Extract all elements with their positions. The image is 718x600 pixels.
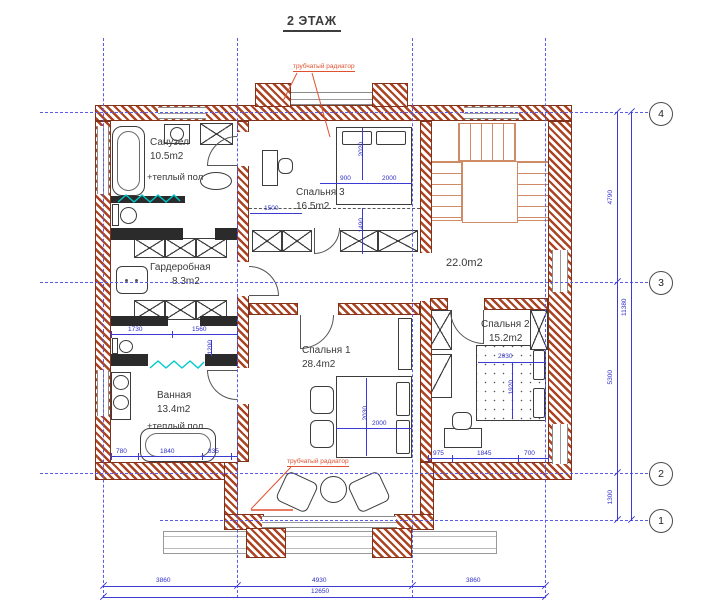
bay-window-top	[291, 92, 372, 105]
room-area: 10.5m2	[150, 150, 189, 164]
dim-label: 1730	[128, 327, 142, 334]
room-label-hall: 22.0m2	[446, 256, 483, 271]
door-opening	[237, 132, 249, 166]
dim-label: 2000	[372, 421, 386, 428]
dim-label: 1845	[477, 451, 491, 458]
stair-flight-top	[458, 123, 516, 161]
door-arc-bedroom2	[450, 310, 484, 344]
pillow	[533, 388, 545, 418]
round-table	[320, 476, 347, 503]
bathtub-sanuzel	[112, 126, 145, 196]
room-label-garderob: Гардеробная 8.3m2	[150, 261, 211, 288]
dim-label: 2030	[363, 401, 370, 425]
room-label-sanuzel: Санузел 10.5m2	[150, 136, 189, 163]
axis-marker-4: 4	[649, 102, 673, 126]
door-opening	[237, 368, 249, 404]
wardrobe-unit	[196, 238, 227, 258]
room-name: Спальня 1	[302, 344, 351, 358]
axis-line-a	[103, 38, 104, 598]
wall-vannaya-north	[111, 354, 148, 366]
room-area: 13.4m2	[157, 403, 191, 417]
shower-partition	[111, 196, 185, 203]
dim-label: 1500	[264, 206, 278, 213]
dim-line-bedroom2	[428, 458, 548, 459]
pillow	[396, 382, 410, 416]
floor-plan-canvas: 2 ЭТАЖ	[0, 0, 718, 600]
pillow	[396, 420, 410, 454]
dim-label: 835	[208, 449, 219, 456]
dim-label-total: 12650	[311, 589, 329, 596]
armchair-bedroom	[310, 386, 334, 414]
pillow	[376, 131, 406, 145]
wardrobe-unit	[134, 238, 165, 258]
dim-line-bed3-h	[320, 183, 412, 184]
wall-bedroom1-north	[249, 303, 298, 315]
room-note-vannaya: +теплый пол	[147, 421, 203, 432]
hall-wardrobe	[252, 230, 282, 252]
room-label-bedroom3: Спальня 3 16.5m2	[296, 186, 345, 213]
dim-label: 1300	[608, 483, 615, 511]
wall-bottom-left	[95, 462, 237, 480]
toilet-bowl-2	[119, 340, 133, 353]
axis-marker-1: 1	[649, 509, 673, 533]
dim-label: 1200	[208, 335, 215, 359]
dim-line-bottom-total	[103, 597, 545, 598]
page-title: 2 ЭТАЖ	[283, 14, 341, 32]
wall-sanuzel-south	[215, 228, 237, 240]
door-arc-bedroom3	[314, 228, 340, 254]
nightstand	[398, 318, 412, 370]
dim-label: 2000	[382, 176, 396, 183]
dim-label: 780	[116, 449, 127, 456]
toilet-bowl	[120, 207, 137, 224]
lounge-armchair-right	[347, 470, 391, 513]
door-leaf	[314, 228, 315, 254]
hall-opening	[420, 253, 432, 301]
door-arc-garderob	[249, 266, 279, 296]
axis-line-3	[40, 282, 648, 283]
sink-sanuzel	[200, 172, 232, 190]
door-leaf	[207, 370, 237, 371]
window-top-stairs	[464, 107, 519, 119]
wall-right	[548, 121, 572, 466]
dim-line-right-total	[631, 112, 632, 521]
door-arc-vannaya	[207, 370, 237, 400]
room-label-bedroom1: Спальня 1 28.4m2	[302, 344, 351, 371]
dim-label: 1560	[192, 327, 206, 334]
dresser	[116, 266, 148, 294]
dim-label: 1920	[509, 375, 516, 399]
dim-label: 4790	[608, 183, 615, 211]
room-name: Спальня 3	[296, 186, 345, 200]
glass-screen-zigzag-vannaya	[150, 361, 204, 368]
dim-label: 5300	[608, 363, 615, 391]
room-name: Гардеробная	[150, 261, 211, 275]
wall-bedroom2-north	[484, 298, 548, 310]
bay-window-bottom	[262, 516, 396, 528]
door-opening	[237, 262, 249, 296]
pillow	[533, 350, 545, 380]
wall-bedroom1-north	[338, 303, 420, 315]
dim-label: 3860	[156, 578, 170, 585]
annotation-radiator-bottom: трубчатый радиатор	[287, 458, 349, 467]
desk-2	[444, 428, 482, 448]
dim-line-bath	[111, 456, 237, 457]
wall-bottom-right	[424, 462, 572, 480]
dim-label: 2030	[498, 354, 512, 361]
axis-line-c	[412, 38, 413, 598]
axis-line-b	[237, 38, 238, 598]
toilet-tank	[112, 204, 119, 226]
axis-line-4	[40, 112, 648, 113]
room-area: 28.4m2	[302, 358, 351, 372]
dim-label-total: 11380	[622, 293, 629, 321]
pier-top-right	[372, 83, 408, 107]
dim-line-bedroom3-left	[250, 213, 302, 214]
room-name: Ванная	[157, 389, 191, 403]
dim-label: 700	[524, 451, 535, 458]
door-leaf	[249, 295, 279, 296]
terrace-edge	[163, 531, 497, 554]
dim-label: 1490	[359, 213, 366, 237]
dim-line-bed1-h	[336, 428, 412, 429]
lounge-armchair-left	[275, 470, 319, 513]
chair-2	[452, 412, 472, 430]
sink-bath-1	[113, 375, 129, 390]
wardrobe-unit	[165, 300, 196, 320]
wall-garderob-south	[200, 316, 237, 326]
room-name: Спальня 2	[481, 318, 530, 332]
dim-label: 1840	[160, 449, 174, 456]
axis-marker-2: 2	[649, 462, 673, 486]
terrace-pier-left	[246, 528, 286, 558]
window-right-stairs	[552, 250, 568, 292]
stair-flight-left	[430, 161, 462, 221]
axis-line-d	[545, 38, 546, 598]
dim-label: 2020	[359, 137, 366, 161]
room-area: 16.5m2	[296, 200, 345, 214]
toilet-tank-2	[112, 338, 118, 354]
wall-garderob-south	[111, 316, 168, 326]
dim-line-bottom	[103, 586, 545, 587]
axis-marker-3: 3	[649, 271, 673, 295]
dim-line-wardrobe	[111, 334, 237, 335]
chair-3	[278, 158, 293, 174]
room-label-bedroom2: Спальня 2 15.2m2	[481, 318, 530, 345]
dim-label: 975	[433, 451, 444, 458]
door-leaf	[207, 165, 237, 166]
terrace-pier-right	[372, 528, 412, 558]
room-name: Санузел	[150, 136, 189, 150]
wardrobe-unit	[165, 238, 196, 258]
axis-line-2	[40, 473, 648, 474]
dim-label: 900	[340, 176, 351, 183]
hall-wardrobe	[282, 230, 312, 252]
wall-sanuzel-south	[111, 228, 183, 240]
room-note-sanuzel: +теплый пол	[147, 172, 203, 183]
desk-3	[262, 150, 278, 186]
room-label-vannaya: Ванная 13.4m2	[157, 389, 191, 416]
dim-label: 4930	[312, 578, 326, 585]
armchair-bedroom	[310, 420, 334, 448]
dim-label: 3860	[466, 578, 480, 585]
dim-line-right	[617, 112, 618, 521]
axis-line-1	[160, 520, 648, 521]
pier-top-left	[255, 83, 291, 107]
window-right-bedroom2	[552, 424, 568, 464]
window-top-sanuzel	[158, 107, 206, 119]
wall-bedroom2-north	[430, 298, 448, 310]
annotation-radiator-top: трубчатый радиатор	[293, 63, 355, 72]
sink-bath-2	[113, 395, 129, 410]
room-area: 15.2m2	[481, 332, 530, 346]
stair-landing	[462, 161, 518, 223]
